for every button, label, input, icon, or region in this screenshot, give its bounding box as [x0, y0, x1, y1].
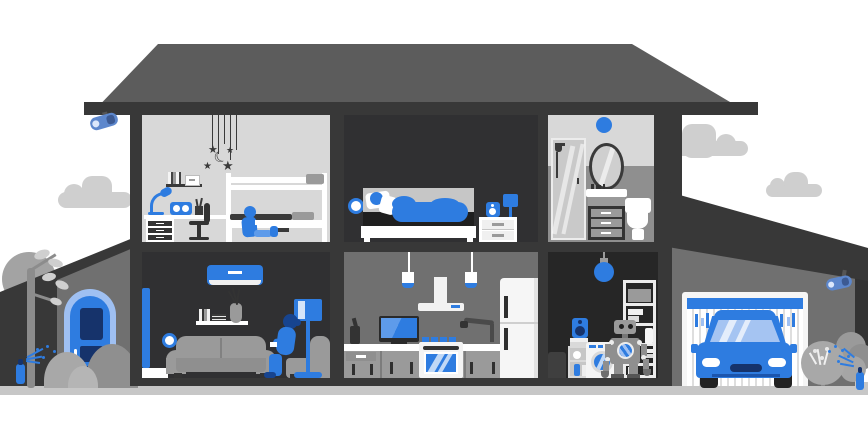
mobile-string — [224, 114, 225, 144]
car-headlight — [702, 358, 720, 367]
room-living — [142, 252, 330, 378]
door-sensor-dash — [792, 313, 795, 327]
cloud-bump — [682, 124, 716, 158]
desk-pedestal — [146, 219, 174, 242]
robot-claw — [643, 369, 651, 376]
toilet-bowl — [627, 213, 648, 229]
water-drop — [53, 350, 56, 353]
smart-oven — [419, 342, 463, 378]
star-icon: ★ — [222, 160, 234, 173]
pencil-cup — [195, 206, 203, 215]
cloud-left — [58, 176, 132, 208]
cabinet-handle — [370, 364, 373, 375]
bunkbed-top-base — [226, 185, 327, 190]
car-headlight — [768, 358, 786, 367]
book-stack — [212, 314, 226, 321]
desk-drawer — [148, 221, 172, 226]
toilet-tank — [625, 198, 651, 213]
drawer-handle — [156, 237, 164, 238]
vanity-drawer — [591, 229, 622, 237]
bush-leaf — [820, 356, 824, 360]
water-drop — [42, 356, 45, 359]
sprinkler-nozzle — [18, 359, 23, 365]
drawer-handle — [492, 234, 504, 237]
camera-band — [841, 277, 850, 286]
phone — [270, 342, 277, 347]
sprinkler-right — [856, 372, 864, 390]
shelf-board — [196, 321, 248, 325]
blanket-bump — [392, 196, 416, 212]
speaker-dot — [491, 204, 494, 207]
side-table — [142, 368, 168, 378]
toilet-base — [632, 229, 644, 240]
bunkbed-dash — [277, 228, 289, 232]
cloud-bump — [770, 178, 785, 193]
oven-window — [424, 352, 458, 374]
child-shoe — [270, 226, 278, 237]
mobile-string — [236, 114, 237, 150]
tv — [379, 316, 419, 342]
water-drop — [847, 355, 850, 358]
blender — [350, 326, 360, 344]
sofa-foot — [174, 373, 182, 378]
robot-foot — [611, 374, 624, 378]
sprinkler-nozzle — [858, 367, 862, 373]
car-mirror — [691, 344, 698, 353]
blanket-bump — [430, 198, 460, 212]
shelf-books — [168, 172, 181, 184]
smart-ceiling-light — [596, 117, 612, 133]
car-grille — [730, 364, 762, 372]
cabinet-handle — [492, 362, 495, 374]
windshield-streak — [733, 320, 751, 342]
faucet-pipe — [490, 324, 494, 342]
robot-foot — [627, 374, 640, 378]
room-utility — [548, 252, 658, 378]
pendant-shade — [402, 272, 414, 283]
room-kitchen — [344, 252, 538, 378]
vanity-counter — [586, 189, 627, 197]
smart-wall-sensor — [162, 333, 177, 348]
pendant-tip — [402, 283, 414, 288]
floor-lamp-pole — [306, 321, 310, 374]
water-drop — [837, 360, 840, 363]
bunkbed-post — [226, 173, 231, 242]
floor-lamp-base — [294, 372, 322, 378]
sprinkler-left — [16, 364, 25, 384]
bed-leg — [364, 238, 370, 242]
smart-wall-sensor — [348, 198, 364, 214]
cabinet-seam — [464, 351, 466, 378]
eave-bar — [84, 102, 758, 115]
pendant-cord — [471, 252, 473, 274]
sofa-seam — [220, 338, 222, 358]
cabinet-handle — [410, 362, 413, 374]
bush-twig — [809, 352, 817, 364]
chair-base — [189, 237, 209, 240]
vanity-cabinet — [588, 206, 625, 240]
car-mirror — [790, 344, 797, 353]
car-bumper-line — [712, 374, 780, 377]
drawer-handle — [601, 212, 611, 214]
desk-drawer — [148, 228, 172, 233]
water-drop — [841, 349, 844, 352]
woman-bun — [294, 319, 301, 326]
hood-light — [451, 305, 460, 308]
shower — [551, 138, 586, 240]
vanity-upper — [588, 197, 625, 206]
desk-drawer — [148, 235, 172, 240]
desk-lamp — [148, 188, 172, 216]
fridge-handle — [504, 296, 508, 318]
cabinet-handle — [390, 362, 393, 374]
cloud-bump — [82, 176, 112, 206]
water-drop — [834, 345, 837, 348]
robot-claw — [601, 371, 609, 378]
smart-speaker — [486, 202, 500, 217]
hood-chimney — [434, 277, 447, 303]
garden-bush — [801, 341, 845, 385]
cloud-bump — [64, 184, 84, 204]
tv-screen — [381, 318, 417, 338]
cabinet-handle — [352, 364, 355, 375]
lamp-head — [159, 186, 173, 199]
drawer-handle — [601, 222, 611, 224]
camera-lens — [828, 281, 835, 288]
room-bathroom — [548, 114, 654, 242]
fridge-shade — [534, 278, 538, 378]
cabinet-seam — [380, 351, 382, 378]
water-drop — [828, 350, 831, 353]
speaker-knob — [173, 205, 180, 212]
ac-vent — [209, 280, 261, 285]
water-drop — [36, 348, 39, 351]
smart-speaker — [170, 202, 192, 215]
robot-eye — [619, 324, 624, 329]
shelf-frame — [185, 175, 200, 186]
cabinet-drawer — [346, 352, 376, 361]
speaker-knob — [182, 205, 189, 212]
star-icon: ★ — [203, 162, 212, 172]
robot-eye — [628, 324, 633, 329]
floor-lamp-shade — [294, 299, 322, 321]
faucet-head — [460, 321, 468, 328]
bush-leaf — [813, 349, 817, 353]
drawer-handle — [156, 223, 164, 224]
pendant-shade — [465, 272, 477, 283]
fridge-split — [500, 322, 538, 324]
car — [696, 308, 792, 389]
water-drop — [46, 345, 49, 348]
pendant-tip — [465, 283, 477, 288]
robot-arm — [605, 344, 611, 358]
drawer-handle — [156, 230, 164, 231]
sofa-seat — [176, 358, 266, 372]
chair-stem — [197, 225, 201, 237]
table-lamp-stem — [509, 207, 512, 217]
room-bedroom — [344, 114, 538, 242]
nightstand-drawer — [482, 220, 514, 230]
nightstand-drawer — [482, 231, 514, 240]
vase — [230, 303, 242, 323]
frame-dash — [189, 179, 195, 181]
shower-handle — [577, 178, 579, 184]
cabinet-handle — [470, 362, 473, 374]
mirror — [589, 143, 624, 190]
robot-assistant — [548, 252, 658, 378]
cloud-right-2 — [766, 172, 822, 197]
drawer-handle — [601, 232, 611, 234]
fridge — [500, 278, 538, 378]
robot-chest-dial — [617, 342, 634, 359]
oven-handle — [423, 346, 459, 350]
mirror-streak — [596, 143, 617, 190]
cloud-bump — [716, 134, 736, 154]
windshield-streak — [718, 320, 738, 342]
pendant-cord — [408, 252, 410, 274]
bunkbed-top-pillow — [306, 174, 324, 184]
shower-hose — [556, 152, 558, 178]
woman-shoe — [264, 372, 276, 378]
room-kids: ★ ★ ☾ ★ ★ — [142, 114, 330, 242]
tablet — [255, 220, 262, 225]
camera-band — [106, 114, 116, 125]
bunkbed-pillow — [292, 212, 314, 220]
bush-twig — [823, 351, 829, 365]
door-panel — [80, 308, 103, 340]
ac-display — [228, 271, 242, 274]
fridge-handle — [504, 328, 508, 350]
air-conditioner — [207, 265, 263, 285]
speaker-cone — [489, 208, 496, 215]
bed-frame — [361, 226, 476, 238]
camera-lens — [92, 120, 101, 129]
car-windshield — [710, 320, 780, 342]
bed-leg — [467, 238, 473, 242]
chair-back — [204, 203, 210, 223]
drawer-handle — [492, 223, 504, 226]
lamp-shade-highlight — [298, 301, 305, 319]
nightstand — [479, 217, 517, 242]
cloud-bump — [784, 172, 808, 196]
shelf-books — [199, 309, 210, 321]
drawer-handle — [356, 355, 366, 358]
smart-home-illustration: ★ ★ ☾ ★ ★ — [0, 0, 868, 441]
vanity-drawer — [591, 209, 622, 217]
table-lamp-shade — [503, 194, 518, 207]
vanity-drawer — [591, 219, 622, 227]
tree-trunk — [27, 268, 35, 388]
window-curtain — [142, 288, 150, 368]
